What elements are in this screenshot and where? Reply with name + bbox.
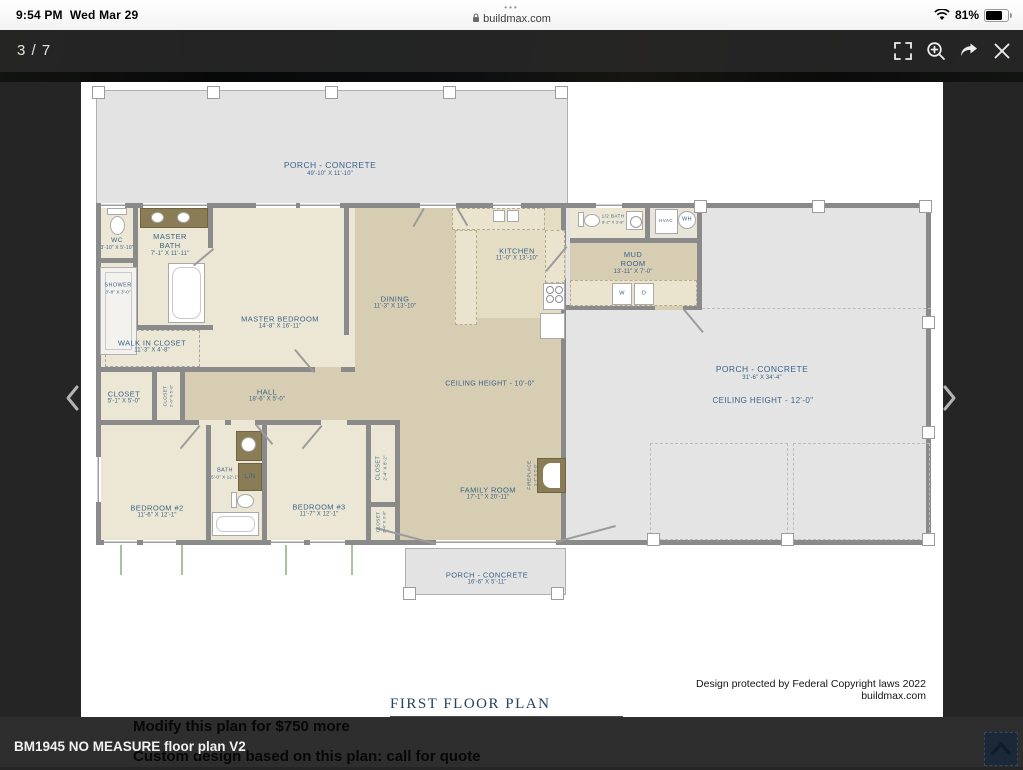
room-label-mud-room: MUD ROOM13'-11" X 7'-0"	[613, 250, 653, 276]
patio-door-opening	[436, 540, 556, 545]
room-dims: 31'-6" X 34'-4"	[716, 375, 808, 383]
room-dims: 11'-6" X 12'-1"	[130, 513, 183, 521]
battery-percent: 81%	[955, 8, 979, 22]
porch-column	[555, 86, 568, 99]
room-name: CLOSET	[108, 390, 140, 399]
window	[143, 540, 176, 545]
porch-column	[922, 426, 935, 439]
room-name: PORCH - CONCRETE	[716, 364, 808, 374]
kitchen-sink-icon	[507, 210, 519, 222]
wall	[697, 203, 702, 310]
toilet-icon	[107, 208, 127, 215]
room-name: HALL	[257, 388, 277, 397]
wall	[366, 425, 371, 540]
label-linen: LIN	[244, 473, 255, 481]
room-dims: 11'-3" X 13'-10"	[374, 304, 416, 312]
room-name: 1/2 BATH	[602, 214, 625, 219]
room-name: KITCHEN	[499, 247, 535, 256]
room-name: BATH	[217, 468, 233, 474]
label-water-heater: WH	[682, 217, 692, 224]
sink-icon	[177, 212, 190, 223]
window	[596, 203, 622, 208]
bathtub-inner	[172, 267, 201, 319]
landscape-mark	[120, 545, 122, 575]
room-dims: 17'-1" X 20'-11"	[460, 495, 516, 503]
wall	[645, 208, 650, 243]
room-label-closet: CLOSET5'-1" X 5'-0"	[108, 390, 141, 407]
kitchen-counter	[455, 230, 477, 325]
kitchen-counter	[545, 230, 565, 283]
label-ceiling-height-porch: CEILING HEIGHT - 12'-0"	[713, 396, 814, 406]
url-text: buildmax.com	[483, 13, 551, 25]
landscape-mark	[351, 545, 353, 575]
porch-column	[443, 86, 456, 99]
room-name: FIREPLACE	[527, 460, 532, 489]
page-indicator: 3 / 7	[17, 42, 51, 59]
fullscreen-icon[interactable]	[891, 39, 915, 63]
room-name: BEDROOM #2	[130, 504, 183, 513]
label-washer: W	[619, 291, 625, 298]
wall	[262, 425, 267, 540]
wall	[344, 203, 349, 335]
room-name: FAMILY ROOM	[460, 486, 516, 495]
burner-icon	[555, 295, 563, 303]
porch-column	[922, 533, 935, 546]
door-opening	[321, 420, 347, 425]
porch-column	[919, 200, 932, 213]
room-dims: 18'-6" X 5'-0"	[249, 397, 285, 405]
top-porch-slab	[96, 90, 568, 207]
landscape-mark	[285, 545, 287, 575]
room-name: SHOWER	[104, 283, 131, 289]
room-label-dining: DINING11'-3" X 13'-10"	[374, 295, 416, 312]
wall	[180, 372, 185, 420]
sink-icon	[241, 437, 256, 452]
room-name: WH	[682, 217, 692, 223]
porch-dashed-pad	[793, 443, 930, 540]
porch-column	[403, 587, 416, 600]
label-ceiling-height-main: CEILING HEIGHT - 10'-0"	[445, 381, 535, 390]
share-icon[interactable]	[957, 39, 981, 63]
room-dims: 2'-0" X 5'-0"	[168, 385, 173, 407]
room-dims: 2'-4" X 8'-2"	[383, 455, 389, 480]
room-name: MASTER BEDROOM	[241, 315, 319, 324]
room-label-porch-bottom: PORCH - CONCRETE16'-6" X 5'-11"	[446, 571, 528, 588]
sink-icon	[151, 212, 164, 223]
room-label-shower: SHOWER3'-8" X 3'-0"	[104, 283, 131, 296]
next-page-chevron-icon[interactable]	[938, 383, 960, 413]
room-name: MASTER BATH	[153, 232, 187, 250]
room-dims: 5'-1" X 5'-0"	[108, 399, 141, 407]
entry-door-opening	[420, 203, 456, 208]
room-dims: 3'-10" X 5'-10"	[100, 245, 133, 251]
previous-page-chevron-icon[interactable]	[62, 383, 84, 413]
room-name: CLOSET	[376, 456, 382, 480]
room-name: PORCH - CONCRETE	[446, 571, 528, 580]
door-opening	[231, 420, 255, 425]
label-hvac: HVAC	[659, 218, 673, 224]
room-dims: 11'-7" X 12'-1"	[292, 512, 345, 520]
room-name: LIN	[244, 473, 255, 480]
room-dims: 11'-3" X 4'-8"	[118, 348, 186, 356]
room-label-bath: BATH5'-0" X 12'-1"	[211, 468, 239, 481]
room-dims: 5'-0" X 12'-1"	[211, 475, 239, 481]
wifi-icon	[934, 9, 950, 21]
porch-column	[922, 316, 935, 329]
wall	[206, 425, 211, 540]
file-name: BM1945 NO MEASURE floor plan V2	[14, 739, 246, 754]
viewer-toolbar	[0, 30, 1023, 72]
window	[96, 457, 101, 502]
label-fireplace: FIREPLACE1'-7" X 5'-0"	[527, 460, 538, 489]
room-label-walk-in-closet: WALK IN CLOSET11'-3" X 4'-8"	[118, 339, 186, 356]
sheet-title: FIRST FLOOR PLAN	[390, 696, 623, 717]
room-label-half-bath: 1/2 BATH8'-2" X 3'-8"	[602, 214, 625, 225]
floor-plan-page: PORCH - CONCRETE49'-10" X 11'-10" WC3'-1…	[81, 82, 943, 717]
porch-column	[812, 200, 825, 213]
wall	[570, 238, 697, 243]
room-dims: 1'-7" X 5'-0"	[532, 460, 537, 489]
porch-dashed-line	[702, 308, 931, 309]
toilet-icon	[584, 214, 600, 227]
wall	[208, 203, 213, 250]
porch-column	[694, 200, 707, 213]
porch-column	[781, 533, 794, 546]
note-text: CEILING HEIGHT - 10'-0"	[445, 381, 535, 388]
wall	[395, 425, 400, 540]
wall	[99, 258, 133, 263]
door-opening	[315, 367, 341, 372]
burner-icon	[546, 286, 554, 294]
room-dims: 11'-0" X 13'-10"	[496, 256, 538, 264]
wall	[366, 502, 400, 507]
room-name: DINING	[381, 295, 410, 304]
porch-column	[207, 86, 220, 99]
sink-icon	[630, 216, 642, 228]
room-label-master-bedroom: MASTER BEDROOM14'-8" X 16'-11"	[241, 315, 319, 332]
porch-column	[325, 86, 338, 99]
copyright-notice: Design protected by Federal Copyright la…	[645, 678, 926, 702]
room-label-porch-right: PORCH - CONCRETE31'-6" X 34'-4"	[716, 364, 808, 382]
chevron-up-icon	[985, 733, 1017, 765]
room-name: MUD ROOM	[621, 250, 646, 268]
room-label-closet-small-bed3: CLOSET2'-4" X 3'-8"	[376, 511, 387, 533]
toilet-icon	[237, 494, 254, 508]
door-opening	[199, 420, 225, 425]
room-dims: 16'-6" X 5'-11"	[446, 580, 528, 588]
window	[256, 203, 296, 208]
room-name: BEDROOM #3	[292, 503, 345, 512]
note-text: CEILING HEIGHT - 12'-0"	[713, 396, 814, 405]
scroll-to-top-button[interactable]	[984, 732, 1018, 766]
landscape-mark	[181, 545, 183, 575]
firebox-opening	[543, 463, 560, 488]
burner-icon	[546, 295, 554, 303]
porch-column	[551, 587, 564, 600]
room-name: PORCH - CONCRETE	[284, 160, 376, 170]
battery-icon	[984, 9, 1009, 22]
porch-column	[647, 533, 660, 546]
room-label-bedroom-2: BEDROOM #211'-6" X 12'-1"	[130, 504, 183, 521]
room-label-family-room: FAMILY ROOM17'-1" X 20'-11"	[460, 486, 516, 503]
porch-column	[92, 86, 105, 99]
room-name: CLOSET	[163, 386, 168, 407]
room-label-porch-top: PORCH - CONCRETE49'-10" X 11'-10"	[284, 160, 376, 178]
room-label-bedroom-3: BEDROOM #311'-7" X 12'-1"	[292, 503, 345, 520]
burner-icon	[555, 286, 563, 294]
porch-dashed-pad	[650, 443, 788, 540]
room-dims: 3'-8" X 3'-0"	[104, 290, 131, 296]
room-dims: 2'-4" X 3'-8"	[381, 511, 386, 533]
window	[310, 540, 345, 545]
room-dims: 8'-2" X 3'-8"	[602, 219, 625, 224]
status-right: 81%	[934, 8, 1009, 22]
room-name: D	[642, 291, 646, 297]
window	[271, 540, 304, 545]
room-label-closet-bed3: CLOSET2'-4" X 8'-2"	[376, 455, 389, 480]
room-name: WC	[111, 237, 123, 244]
window	[300, 203, 340, 208]
site-address: buildmax.com	[0, 13, 1023, 25]
room-label-hall: HALL18'-6" X 5'-0"	[249, 388, 285, 405]
room-label-master-bath: MASTER BATH7'-1" X 11'-11"	[147, 232, 193, 258]
room-label-kitchen: KITCHEN11'-0" X 13'-10"	[496, 247, 538, 264]
kitchen-sink-icon	[493, 210, 505, 222]
room-name: CLOSET	[376, 512, 381, 533]
room-dims: 13'-11" X 7'-0"	[613, 269, 653, 277]
window	[104, 540, 137, 545]
room-name: HVAC	[659, 218, 673, 223]
lock-icon	[472, 13, 480, 23]
room-name: WALK IN CLOSET	[118, 339, 186, 348]
tab-dots: •••	[0, 3, 1023, 12]
room-dims: 7'-1" X 11'-11"	[147, 251, 193, 259]
room-dims: 49'-10" X 11'-10"	[284, 171, 376, 179]
room-dims: 14'-8" X 16'-11"	[241, 324, 319, 332]
modify-plan-text: Modify this plan for $750 more	[133, 718, 350, 735]
label-dryer: D	[642, 291, 646, 298]
toilet-icon	[110, 216, 125, 235]
room-label-wc: WC3'-10" X 5'-10"	[100, 237, 133, 251]
room-label-closet-small: CLOSET2'-0" X 5'-0"	[163, 385, 174, 407]
bathtub-inner	[216, 516, 255, 532]
zoom-in-icon[interactable]	[924, 39, 948, 63]
close-icon[interactable]	[990, 39, 1014, 63]
status-bar: 9:54 PM Wed Mar 29 ••• buildmax.com 81%	[0, 0, 1023, 30]
refrigerator-icon	[540, 313, 565, 339]
room-name: W	[619, 291, 625, 297]
wall	[152, 372, 157, 420]
